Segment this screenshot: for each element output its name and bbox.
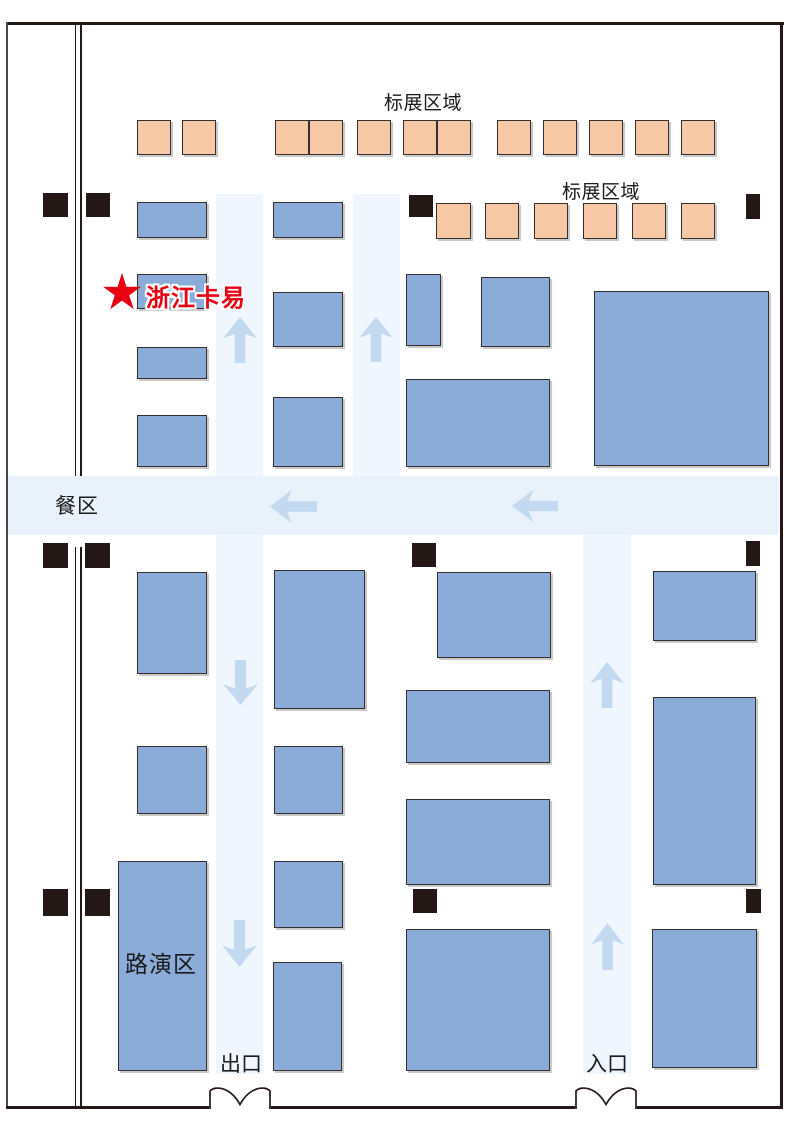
entrance-door-icon xyxy=(571,1084,641,1110)
wall-right xyxy=(780,22,783,1109)
wall-left xyxy=(6,22,8,1109)
star-icon xyxy=(102,271,142,311)
rail-line-lower xyxy=(75,547,82,1108)
wall-top xyxy=(6,22,784,25)
label-exit: 出口 xyxy=(220,1048,262,1078)
label-highlight-booth: 浙江卡易 xyxy=(146,278,246,313)
label-roadshow-area: 路演区 xyxy=(125,945,197,979)
label-dining-area: 餐区 xyxy=(55,490,99,520)
label-entrance: 入口 xyxy=(586,1048,628,1078)
wall-bottom-right xyxy=(637,1106,781,1109)
exhibition-floor-plan: 标展区域 标展区域 餐区 路演区 出口 入口 浙江卡易 xyxy=(0,0,794,1121)
rail-line-upper xyxy=(75,22,82,476)
label-standard-area-top: 标展区域 xyxy=(384,88,462,115)
exit-door-icon xyxy=(205,1084,275,1110)
label-standard-area-right: 标展区域 xyxy=(562,177,640,204)
wall-bottom-left xyxy=(6,1106,209,1109)
door-layer xyxy=(0,0,794,1121)
wall-bottom-middle xyxy=(271,1106,575,1109)
